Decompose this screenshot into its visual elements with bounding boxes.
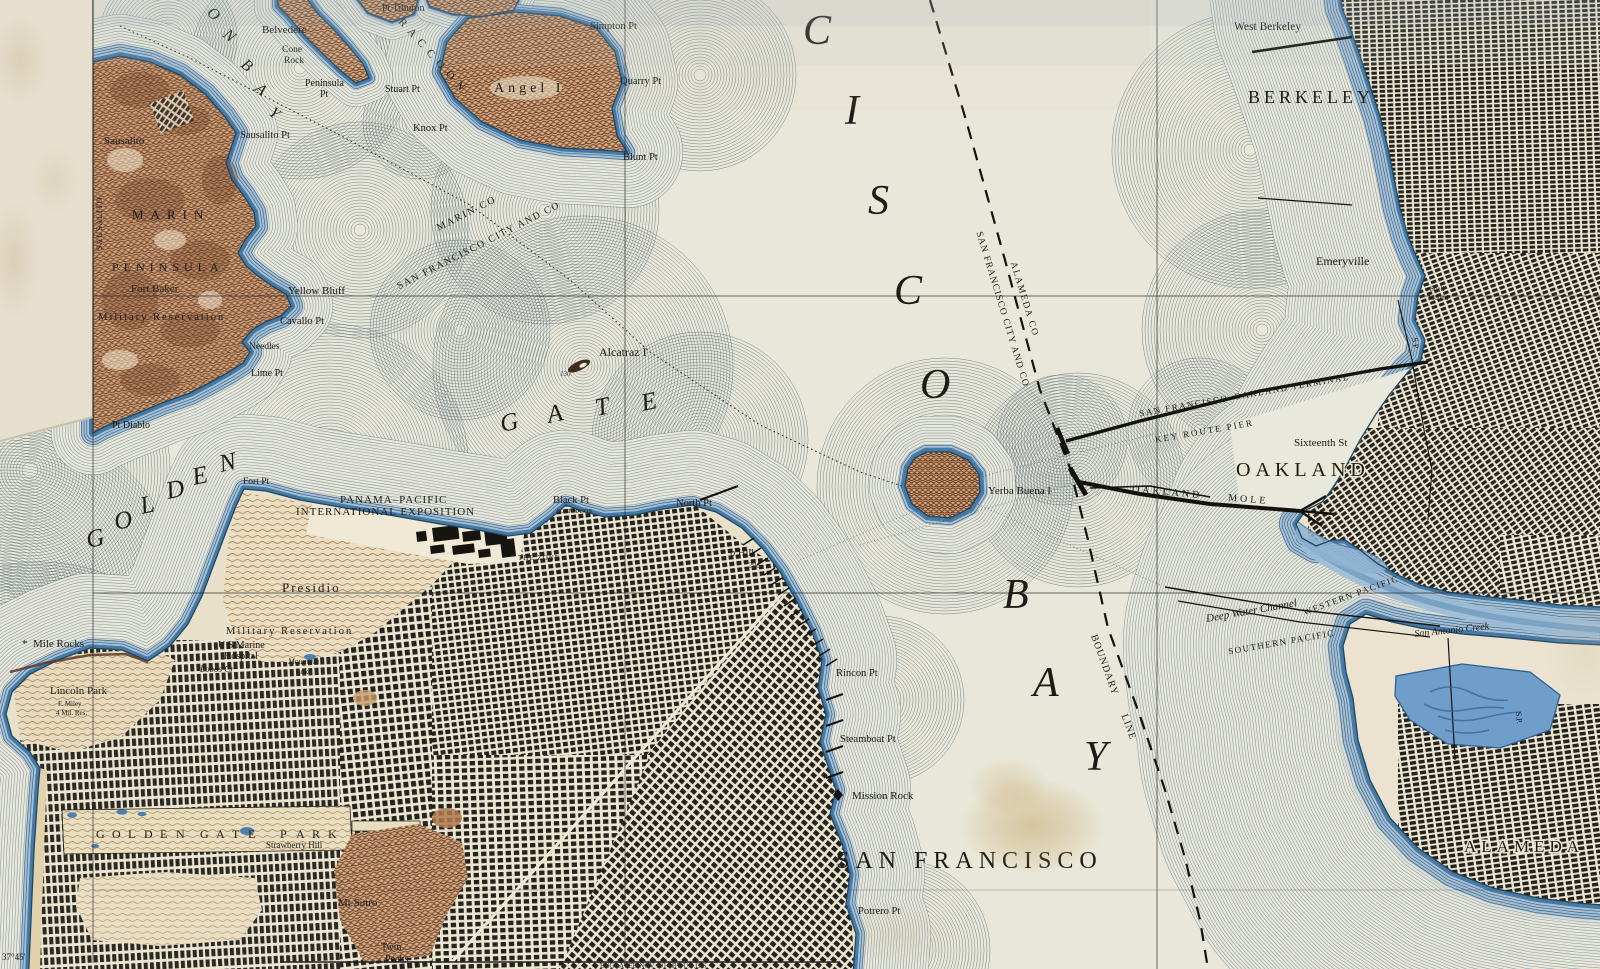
svg-text:A: A — [296, 827, 305, 841]
svg-text:PENINSULA: PENINSULA — [112, 260, 224, 274]
svg-text:D: D — [144, 827, 153, 841]
svg-text:FORT MASON: FORT MASON — [555, 509, 593, 515]
svg-text:Lake: Lake — [295, 667, 312, 676]
svg-text:E: E — [248, 827, 255, 841]
svg-text:MARIN: MARIN — [132, 207, 210, 222]
svg-text:Strawberry Hill: Strawberry Hill — [266, 840, 323, 850]
svg-text:Hospital: Hospital — [224, 651, 258, 662]
svg-text:A: A — [1030, 660, 1059, 706]
svg-text:Lime Pt: Lime Pt — [251, 368, 283, 379]
svg-text:Lobos Cr: Lobos Cr — [199, 664, 234, 674]
svg-text:Alcatraz I: Alcatraz I — [599, 345, 647, 359]
svg-text:4 Mil. Res.: 4 Mil. Res. — [56, 709, 87, 717]
svg-text:P: P — [280, 827, 287, 841]
svg-text:Sausalito Pt: Sausalito Pt — [240, 130, 290, 141]
svg-text:Emeryville: Emeryville — [1316, 254, 1369, 268]
svg-text:Pt Diablo: Pt Diablo — [112, 420, 150, 431]
svg-text:Pt: Pt — [320, 89, 329, 100]
svg-text:ALAMEDA: ALAMEDA — [1464, 837, 1584, 856]
svg-text:L: L — [128, 827, 135, 841]
svg-text:Yerba Buena I: Yerba Buena I — [988, 485, 1051, 497]
svg-text:B: B — [1003, 572, 1029, 618]
svg-text:G: G — [96, 827, 105, 841]
svg-text:Steamboat Pt: Steamboat Pt — [840, 734, 896, 745]
svg-text:S.P.: S.P. — [1514, 711, 1524, 724]
svg-text:G: G — [200, 827, 209, 841]
svg-text:THE ZONE: THE ZONE — [518, 554, 560, 562]
svg-text:SAUSALITO: SAUSALITO — [95, 197, 104, 250]
svg-text:PANAMA–PACIFIC: PANAMA–PACIFIC — [340, 494, 447, 506]
svg-text:*: * — [22, 638, 28, 650]
svg-text:INTERNATIONAL EXPOSITION: INTERNATIONAL EXPOSITION — [296, 506, 475, 518]
svg-text:S: S — [868, 178, 889, 224]
svg-text:Military Reservation: Military Reservation — [98, 312, 225, 323]
svg-text:Black Pt: Black Pt — [553, 495, 589, 506]
svg-text:K: K — [328, 827, 337, 841]
svg-text:130: 130 — [560, 370, 571, 378]
svg-text:Mt Sutro: Mt Sutro — [338, 897, 378, 909]
svg-text:Peaks: Peaks — [385, 954, 408, 965]
svg-text:T: T — [232, 827, 240, 841]
svg-text:Sausalito: Sausalito — [104, 135, 145, 147]
svg-text:Sixteenth St: Sixteenth St — [1294, 437, 1347, 449]
svg-text:U S Marine: U S Marine — [218, 640, 265, 651]
svg-text:C: C — [894, 268, 923, 314]
svg-text:O: O — [112, 827, 121, 841]
svg-text:O: O — [920, 362, 950, 408]
svg-text:ENGRAVED NOV 1914 BY U.S.G.S.: ENGRAVED NOV 1914 BY U.S.G.S. — [600, 962, 708, 969]
svg-text:Angel I: Angel I — [494, 81, 564, 96]
svg-text:Knox Pt: Knox Pt — [413, 123, 448, 134]
svg-text:Needles: Needles — [249, 342, 280, 352]
svg-text:E: E — [160, 827, 167, 841]
svg-text:Lincoln Park: Lincoln Park — [50, 685, 108, 697]
svg-text:N: N — [176, 827, 185, 841]
svg-text:Peninsula: Peninsula — [305, 78, 344, 89]
svg-text:Military Reservation: Military Reservation — [226, 626, 353, 637]
svg-text:Twin: Twin — [381, 942, 401, 953]
svg-text:Presidio: Presidio — [282, 580, 341, 595]
svg-text:North Pt: North Pt — [676, 498, 712, 509]
svg-text:b Hill: b Hill — [730, 548, 754, 559]
svg-text:R: R — [312, 827, 320, 841]
svg-text:BERKELEY: BERKELEY — [1248, 87, 1374, 107]
svg-text:Blunt Pt: Blunt Pt — [623, 152, 658, 163]
svg-text:Shell: Shell — [1430, 285, 1444, 293]
svg-text:A: A — [216, 827, 225, 841]
svg-text:296: 296 — [748, 561, 760, 570]
svg-text:Mountain: Mountain — [287, 657, 319, 666]
svg-text:Mission Rock: Mission Rock — [852, 790, 914, 802]
svg-text:Rincon Pt: Rincon Pt — [836, 668, 878, 679]
svg-text:Mound: Mound — [1428, 294, 1449, 302]
svg-text:Mile Rocks: Mile Rocks — [33, 638, 84, 650]
svg-text:Fort Pt: Fort Pt — [243, 477, 269, 487]
svg-text:Fort Baker: Fort Baker — [131, 283, 179, 295]
svg-text:F. Miley: F. Miley — [58, 700, 82, 708]
svg-text:Cavallo Pt: Cavallo Pt — [280, 316, 324, 327]
svg-text:37°45': 37°45' — [2, 952, 26, 962]
svg-text:OAKLAND: OAKLAND — [1236, 459, 1370, 481]
svg-text:Yellow Bluff: Yellow Bluff — [288, 285, 345, 297]
svg-text:Stuart Pt: Stuart Pt — [385, 84, 420, 95]
